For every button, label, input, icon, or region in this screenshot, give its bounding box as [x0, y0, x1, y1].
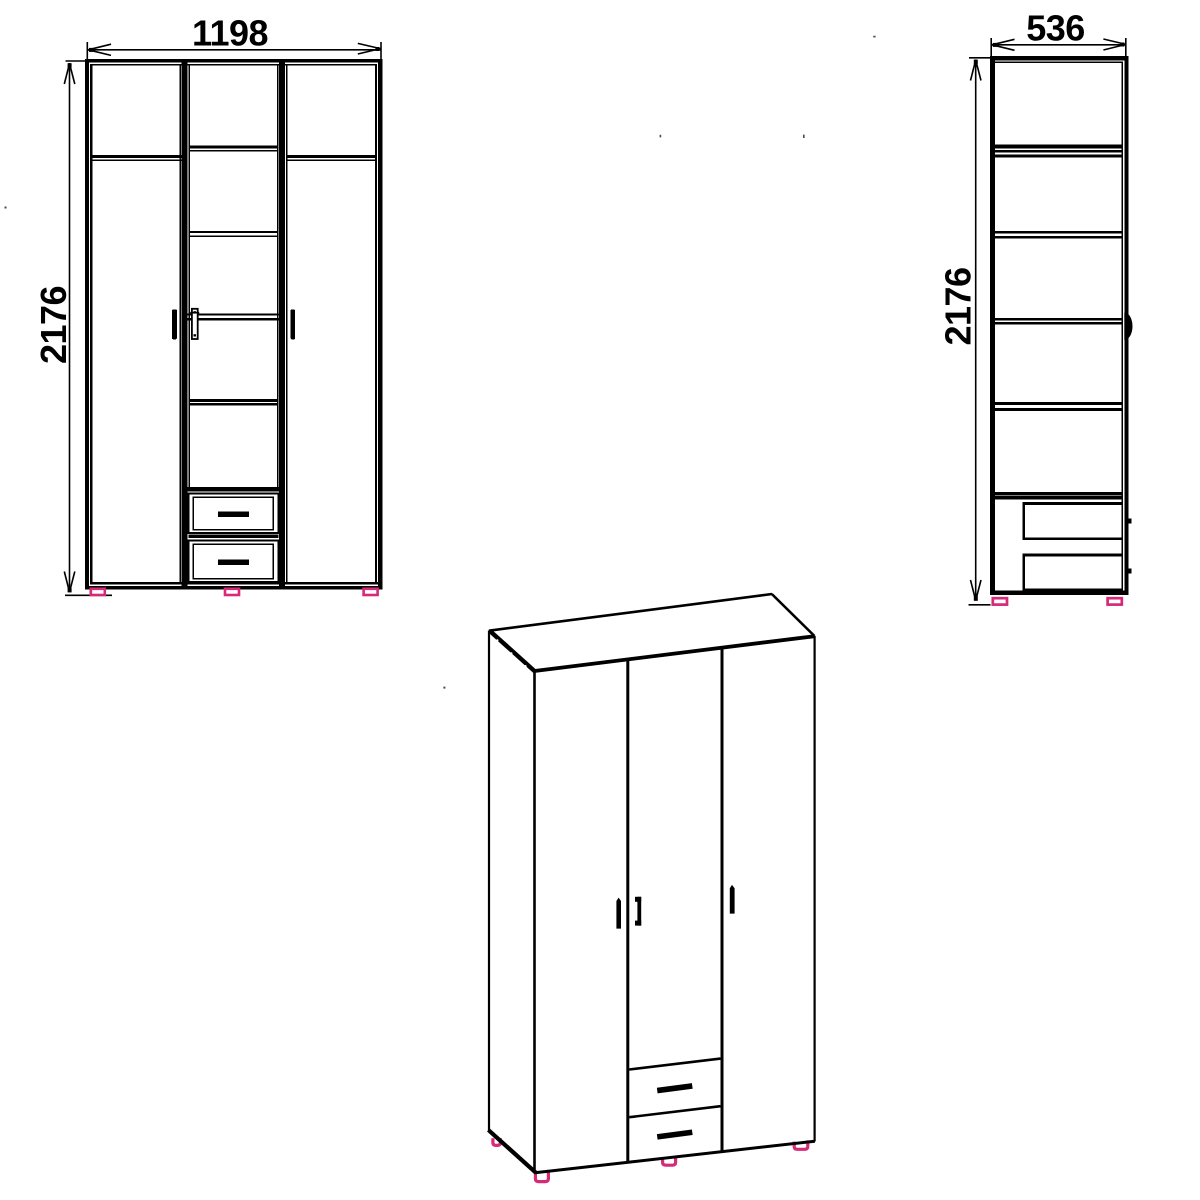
svg-text:536: 536 — [1026, 8, 1085, 49]
svg-text:2176: 2176 — [937, 267, 978, 345]
svg-text:1198: 1198 — [192, 13, 268, 54]
svg-text:2176: 2176 — [33, 286, 74, 364]
